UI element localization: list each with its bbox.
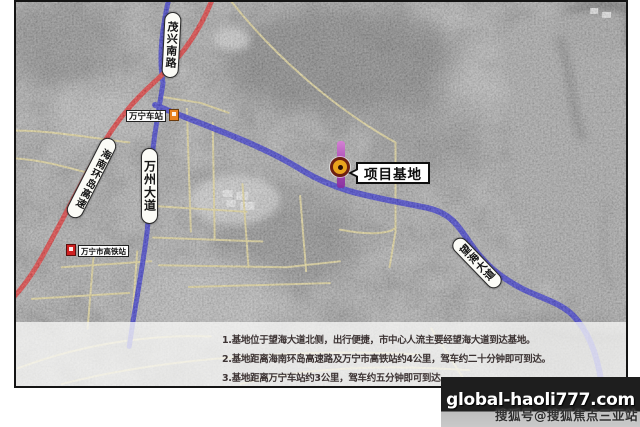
note-line-1: 1.基地位于望海大道北侧，出行便捷，市中心人流主要经望海大道到达基地。 [222, 331, 582, 350]
page: { "colors": { "road-yellow": "#e9d98c", … [0, 0, 640, 427]
bus-station-icon [169, 109, 179, 121]
watermark-band: global-haoli777.com 搜狐号@搜狐焦点三亚站 [441, 377, 640, 427]
project-target-marker-icon [330, 157, 350, 177]
project-base-callout: 项目基地 [356, 162, 430, 184]
station-label-wanning-station: 万宁车站 [126, 110, 166, 122]
note-line-2: 2.基地距离海南环岛高速路及万宁市高铁站约4公里，驾车约二十分钟即可到达。 [222, 350, 582, 369]
station-label-wanning-hsr-station: 万宁市高铁站 [78, 245, 129, 257]
watermark-account-text: 搜狐号@搜狐焦点三亚站 [495, 405, 638, 424]
road-label-maoxing-south-road: 茂兴南路 [161, 12, 181, 79]
road-label-wanzhou-avenue: 万州大道 [141, 148, 158, 224]
rail-station-icon [66, 244, 76, 256]
